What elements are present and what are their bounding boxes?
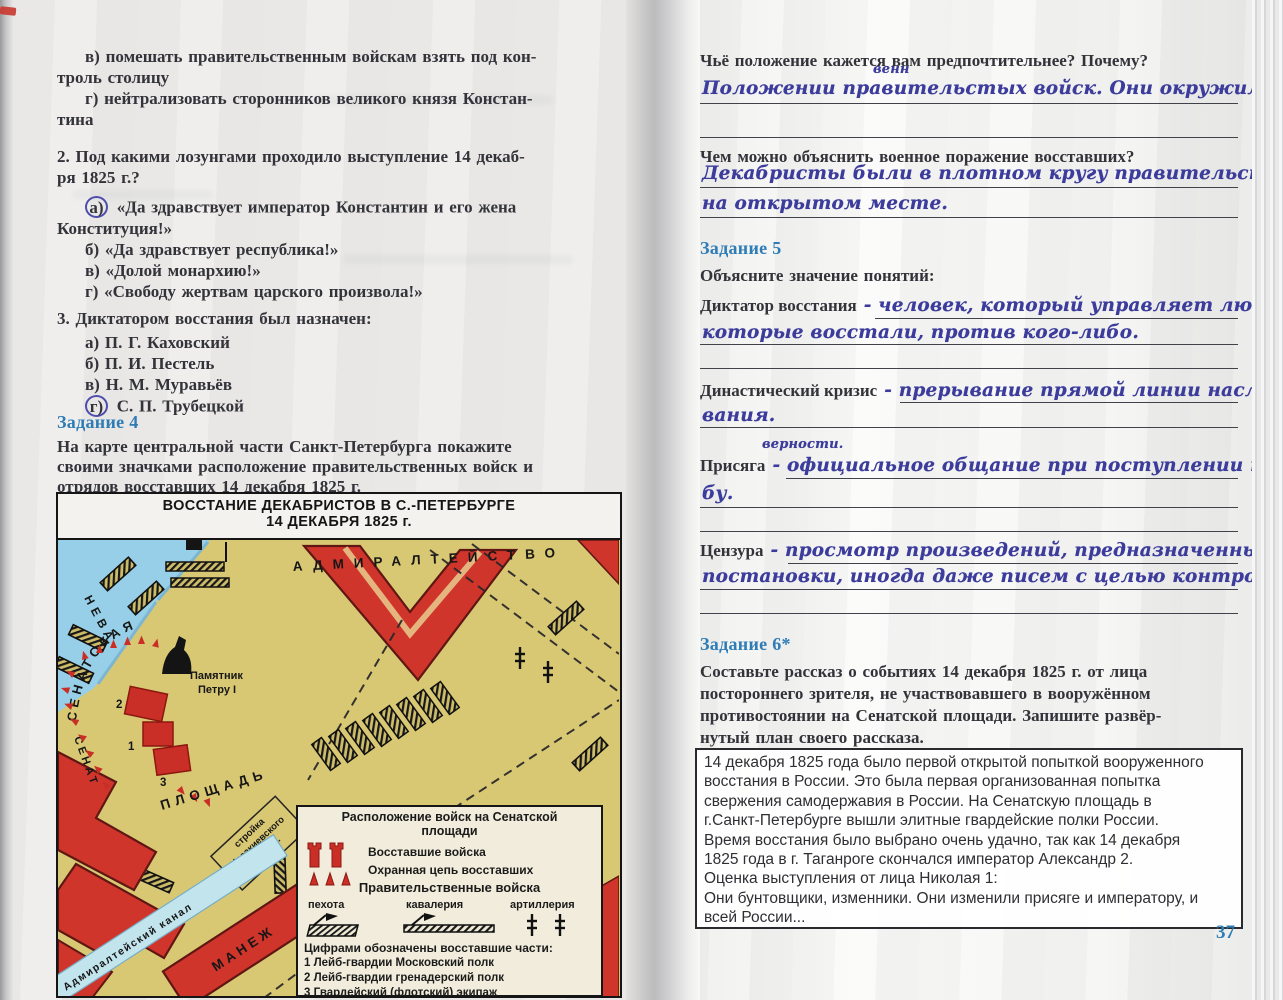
term-dictator-label: Диктатор восстания: [700, 296, 857, 316]
typed-line: 1825 года в г. Таганроге скончался импер…: [704, 850, 1235, 869]
legend-rebel-label: Восставшие войска: [368, 845, 486, 859]
q2-option-a-letter: а): [89, 197, 103, 218]
handwritten-insertion-vernosti: верности.: [762, 437, 844, 452]
handwritten-answer-defeat-line2: на открытом месте.: [702, 193, 948, 214]
task4-text: На карте центральной части Санкт-Петербу…: [57, 437, 533, 497]
legend-unit3: 3 Гвардейский (флотский) экипаж: [304, 987, 497, 998]
map-title-line2: 14 ДЕКАБРЯ 1825 г.: [58, 514, 620, 530]
term-dynastic-crisis: Династический кризис - прерывание прямой…: [700, 380, 1283, 401]
legend-artillery-label: артиллерия: [510, 899, 575, 911]
typed-line: Они бунтовщики, изменники. Они изменили …: [704, 889, 1235, 908]
legend-infantry-label: пехота: [308, 899, 344, 911]
typed-line: 14 декабря 1825 года было первой открыто…: [704, 753, 1235, 772]
rebel-unit-number-1: 1: [128, 741, 135, 753]
answer-rule: [700, 589, 1238, 590]
answer-rule: [700, 531, 1238, 532]
answer-rule: [700, 427, 1238, 428]
task6-line3: противостоянии на Сенатской площади. Зап…: [700, 705, 1161, 727]
answer-rule: [700, 507, 1238, 508]
right-page: Чьё положение кажется вам предпочтительн…: [700, 0, 1252, 1000]
legend-gov-label: Правительственные войска: [298, 881, 601, 895]
answer-rule: [875, 318, 1238, 319]
answer-rule: [900, 402, 1238, 403]
term-dictator-hand-line2: которые восстали, против кого-либо.: [702, 322, 1139, 343]
legend-title-line1: Расположение войск на Сенатской: [298, 810, 601, 824]
term-censorship-hand-line2: постановки, иногда даже писем с целью ко…: [702, 566, 1283, 587]
q2-option-a-text: «Да здравствует император Константин и е…: [117, 198, 517, 217]
question2-text-line1: 2. Под какими лозунгами проходило выступ…: [57, 146, 525, 167]
q2-option-b: б) «Да здравствует республика!»: [57, 239, 516, 260]
q3-option-a: а) П. Г. Каховский: [57, 332, 244, 353]
task4-line1: На карте центральной части Санкт-Петербу…: [57, 437, 533, 457]
question2: 2. Под какими лозунгами проходило выступ…: [57, 146, 525, 188]
option-v-line2: троль столицу: [57, 67, 536, 88]
handwritten-insertion: венн: [873, 62, 910, 77]
monument-label-line2: Петру I: [198, 684, 236, 696]
task6-line1: Составьте рассказ о событиях 14 декабря …: [700, 661, 1161, 683]
answer-rule: [700, 187, 1238, 188]
term-oath-hand-line1: - официальное общание при поступлении на…: [772, 455, 1283, 476]
q2-option-d: г) «Свободу жертвам царского произвола!»: [57, 281, 516, 302]
typed-line: восстания в России. Это была первая орга…: [704, 772, 1235, 791]
left-page-edge: [0, 0, 13, 1000]
answer-rule: [700, 344, 1238, 345]
q2-option-c: в) «Долой монархию!»: [57, 260, 516, 281]
answer-rule: [700, 368, 1238, 369]
hw-position-after: ых войск. Они окружили декабристов: [997, 78, 1283, 99]
term-censorship: Цензура - просмотр произведений, предназ…: [700, 540, 1283, 561]
question3-text: 3. Диктатором восстания был назначен:: [57, 308, 372, 329]
term-dictator-hand-line1: - человек, который управляет людьми,: [864, 295, 1283, 316]
q2-option-a: а) «Да здравствует император Константин …: [57, 196, 516, 218]
book-gutter: [626, 0, 700, 1000]
book-scan: в) помешать правительственным войскам вз…: [0, 0, 1283, 1000]
map-figure: ВОССТАНИЕ ДЕКАБРИСТОВ В С.-ПЕТЕРБУРГЕ 14…: [56, 492, 622, 998]
task6-text: Составьте рассказ о событиях 14 декабря …: [700, 661, 1161, 749]
typed-line: Время восстания было выбрано очень удачн…: [704, 831, 1235, 850]
map-title-line1: ВОССТАНИЕ ДЕКАБРИСТОВ В С.-ПЕТЕРБУРГЕ: [58, 494, 620, 514]
legend-gov-symbols: [302, 911, 600, 941]
page-number: 37: [1216, 922, 1235, 944]
option-v-line1: в) помешать правительственным войскам вз…: [57, 46, 536, 67]
typed-line: г.Санкт-Петербурге вышли элитные гвардей…: [704, 811, 1235, 830]
typed-answer-box: 14 декабря 1825 года было первой открыто…: [695, 748, 1243, 929]
legend-unit1: 1 Лейб-гвардии Московский полк: [304, 957, 494, 969]
task5-heading: Задание 5: [700, 238, 782, 259]
term-oath: Присяга - официальное общание при поступ…: [700, 455, 1283, 476]
legend-cavalry-label: кавалерия: [406, 899, 463, 911]
task6-line4: нутый план своего рассказа.: [700, 727, 1161, 749]
task6-heading: Задание 6*: [700, 634, 791, 655]
term-dynastic-label: Династический кризис: [700, 381, 877, 401]
question1-options: в) помешать правительственным войскам вз…: [57, 46, 536, 130]
answer-rule: [700, 217, 1238, 218]
handwritten-answer-position: Положении правительстых войск. Они окруж…: [702, 78, 1283, 99]
option-g-line2: тина: [57, 109, 536, 130]
term-oath-hand-line2: бу.: [702, 483, 733, 504]
legend-title-line2: площади: [298, 824, 601, 838]
term-oath-label: Присяга: [700, 456, 765, 476]
task4-heading: Задание 4: [57, 412, 139, 433]
question2-options: а) «Да здравствует император Константин …: [57, 196, 516, 302]
answer-rule: [788, 563, 1238, 564]
rebel-unit-number-3: 3: [160, 777, 166, 789]
task6-line2: постороннего зрителя, не участвовавшего …: [700, 683, 1161, 705]
q3-option-c: в) Н. М. Муравьёв: [57, 374, 244, 395]
question-position: Чьё положение кажется вам предпочтительн…: [700, 50, 1148, 71]
answer-rule: [700, 103, 1238, 104]
legend-unit2: 2 Лейб-гвардии гренадерский полк: [304, 972, 504, 984]
map-title: ВОССТАНИЕ ДЕКАБРИСТОВ В С.-ПЕТЕРБУРГЕ 14…: [58, 494, 620, 540]
typed-line: всей России...: [704, 908, 1235, 927]
typed-line: Оценка выступления от лица Николая 1:: [704, 869, 1235, 888]
typed-line: свержения самодержавия в России. На Сена…: [704, 792, 1235, 811]
legend-note: Цифрами обозначены восставшие части:: [298, 941, 607, 955]
legend-chain-label: Охранная цепь восставших: [368, 863, 533, 877]
question2-text-line2: ря 1825 г.?: [57, 167, 525, 188]
handwritten-answer-defeat-line1: Декабристы были в плотном кругу правител…: [702, 163, 1283, 184]
rebel-unit-number-2: 2: [116, 699, 122, 711]
term-censorship-label: Цензура: [700, 541, 764, 561]
q2-option-a-line2: Конституция!»: [57, 218, 516, 239]
hw-position-before: Положении правительст: [702, 78, 997, 99]
answer-rule: [700, 137, 1238, 138]
map-legend: Расположение войск на Сенатской площади …: [296, 805, 603, 997]
left-page: в) помешать правительственным войскам вз…: [13, 0, 626, 1000]
option-g-line1: г) нейтрализовать сторонников великого к…: [57, 88, 536, 109]
page-stack-edge: [1252, 0, 1283, 1000]
answer-circle-a: а): [85, 196, 108, 218]
term-censorship-hand-line1: - просмотр произведений, предназначенных…: [771, 540, 1283, 561]
question3-options: а) П. Г. Каховский б) П. И. Пестель в) Н…: [57, 332, 244, 417]
term-dictator: Диктатор восстания - человек, который уп…: [700, 295, 1283, 316]
term-dynastic-hand-line2: вания.: [702, 405, 775, 426]
q3-option-b: б) П. И. Пестель: [57, 353, 244, 374]
answer-rule: [786, 478, 1238, 479]
task5-subtitle: Объясните значение понятий:: [700, 265, 935, 286]
task4-line2: своими значками расположение правительст…: [57, 457, 533, 477]
monument-label-line1: Памятник: [190, 670, 243, 682]
term-dynastic-hand-line1: - прерывание прямой линии наследо-: [884, 380, 1283, 401]
answer-rule: [700, 613, 1238, 614]
